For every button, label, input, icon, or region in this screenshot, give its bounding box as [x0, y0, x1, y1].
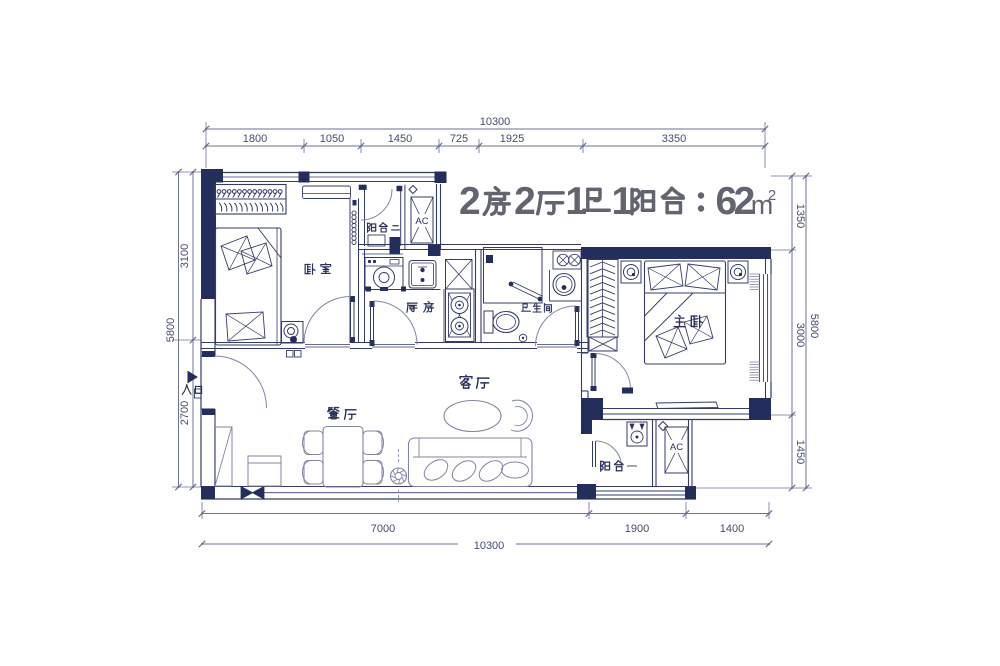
svg-text:1350: 1350: [794, 204, 806, 228]
svg-text:1450: 1450: [794, 440, 806, 464]
svg-text:5800: 5800: [808, 314, 820, 338]
svg-text:3000: 3000: [794, 323, 806, 347]
svg-text:1800: 1800: [243, 133, 267, 145]
svg-text:AC: AC: [670, 442, 683, 453]
svg-text:7000: 7000: [371, 523, 395, 535]
svg-text:2700: 2700: [179, 401, 191, 425]
svg-text:5800: 5800: [165, 318, 177, 342]
svg-text:1400: 1400: [720, 523, 744, 535]
svg-text:3100: 3100: [179, 244, 191, 268]
svg-text:AC: AC: [415, 216, 428, 227]
svg-text:10300: 10300: [480, 116, 511, 128]
svg-text:1: 1: [612, 180, 634, 223]
svg-text:725: 725: [450, 133, 468, 145]
svg-text:1450: 1450: [388, 133, 412, 145]
svg-text:1050: 1050: [320, 133, 344, 145]
svg-text:1900: 1900: [625, 523, 649, 535]
svg-text:2: 2: [514, 180, 536, 223]
svg-text:1925: 1925: [500, 133, 524, 145]
svg-text:2: 2: [768, 187, 776, 204]
svg-text:10300: 10300: [474, 540, 505, 552]
svg-text:2: 2: [459, 180, 481, 223]
svg-text:3350: 3350: [662, 133, 686, 145]
svg-text:1: 1: [565, 180, 587, 223]
